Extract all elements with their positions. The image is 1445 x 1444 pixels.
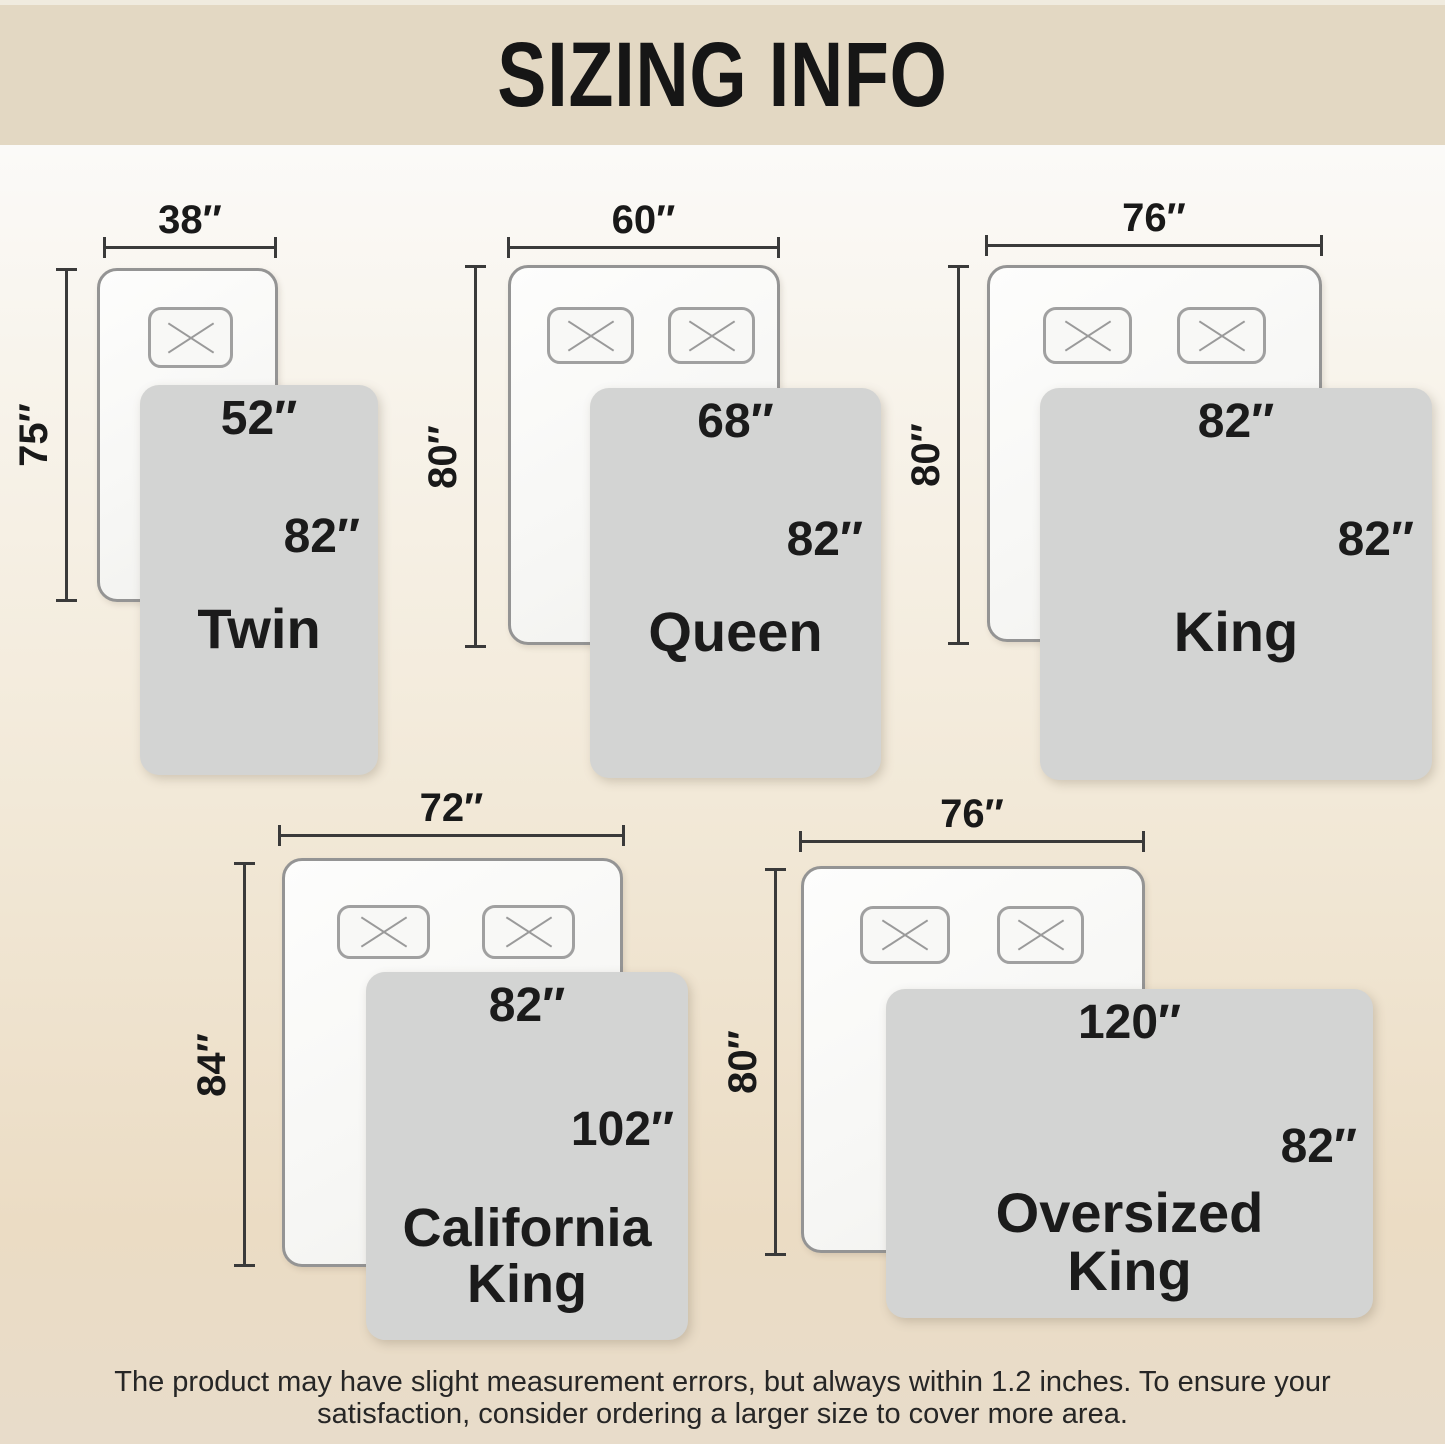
- blanket: 52″ 82″ Twin: [140, 385, 378, 775]
- footer-note-line2: satisfaction, consider ordering a larger…: [0, 1398, 1445, 1430]
- pillow: [148, 307, 233, 368]
- pillow-x-icon: [340, 908, 427, 956]
- bed-length-line: [243, 862, 246, 1267]
- pillow-x-icon: [550, 310, 631, 361]
- bed-width-label: 60″: [507, 198, 780, 242]
- bed-length-dimension: 75″: [65, 268, 68, 602]
- bed-length-line: [474, 265, 477, 648]
- bed-width-line: [799, 840, 1145, 843]
- blanket: 120″ 82″ Oversized King: [886, 989, 1373, 1318]
- bed-width-dimension: 60″: [507, 198, 780, 249]
- blanket: 82″ 82″ King: [1040, 388, 1432, 780]
- blanket-name: Twin: [140, 600, 378, 658]
- footer-note: The product may have slight measurement …: [0, 1366, 1445, 1430]
- footer-note-line1: The product may have slight measurement …: [0, 1366, 1445, 1398]
- blanket-length-label: 102″: [571, 1102, 674, 1157]
- sizing-info-page: SIZING INFO 38″ 75″ 52″ 82″ Twin 60″ 80″: [0, 0, 1445, 1444]
- pillow-x-icon: [151, 310, 230, 365]
- blanket-width-label: 82″: [366, 978, 688, 1033]
- pillow-x-icon: [863, 909, 947, 961]
- bed-length-label: 84″: [190, 1033, 234, 1097]
- blanket-width-label: 82″: [1040, 394, 1432, 449]
- bed-width-label: 72″: [278, 786, 625, 830]
- pillow: [547, 307, 634, 364]
- blanket-name: King: [1040, 603, 1432, 661]
- pillow: [997, 906, 1084, 964]
- pillow-x-icon: [671, 310, 752, 361]
- bed-length-label: 80″: [421, 425, 465, 489]
- blanket: 82″ 102″ California King: [366, 972, 688, 1340]
- blanket-width-label: 52″: [140, 391, 378, 446]
- blanket-name: Queen: [590, 603, 881, 661]
- bed-length-line: [957, 265, 960, 645]
- bed-length-label: 80″: [904, 423, 948, 487]
- pillow-x-icon: [1180, 310, 1263, 361]
- bed-length-line: [774, 868, 777, 1256]
- blanket-width-label: 120″: [886, 995, 1373, 1050]
- bed-length-dimension: 80″: [957, 265, 960, 645]
- blanket-name: Oversized King: [886, 1184, 1373, 1300]
- bed-length-label: 80″: [721, 1030, 765, 1094]
- pillow-x-icon: [1000, 909, 1081, 961]
- bed-width-line: [985, 244, 1323, 247]
- pillow: [1177, 307, 1266, 364]
- blanket-length-label: 82″: [787, 512, 863, 567]
- pillow: [337, 905, 430, 959]
- pillow: [668, 307, 755, 364]
- bed-width-label: 38″: [103, 198, 277, 242]
- bed-width-dimension: 72″: [278, 786, 625, 837]
- blanket-name: California King: [366, 1200, 688, 1312]
- bed-width-line: [278, 834, 625, 837]
- bed-length-dimension: 84″: [243, 862, 246, 1267]
- bed-width-dimension: 76″: [799, 792, 1145, 843]
- blanket: 68″ 82″ Queen: [590, 388, 881, 778]
- bed-length-dimension: 80″: [474, 265, 477, 648]
- header: SIZING INFO: [0, 5, 1445, 145]
- blanket-length-label: 82″: [284, 509, 360, 564]
- bed-width-dimension: 76″: [985, 196, 1323, 247]
- pillow: [482, 905, 575, 959]
- blanket-length-label: 82″: [1281, 1119, 1357, 1174]
- page-title: SIZING INFO: [497, 23, 947, 128]
- blanket-length-label: 82″: [1338, 512, 1414, 567]
- pillow-x-icon: [1046, 310, 1129, 361]
- bed-width-label: 76″: [985, 196, 1323, 240]
- bed-width-label: 76″: [799, 792, 1145, 836]
- blanket-width-label: 68″: [590, 394, 881, 449]
- bed-width-dimension: 38″: [103, 198, 277, 249]
- pillow-x-icon: [485, 908, 572, 956]
- bed-width-line: [507, 246, 780, 249]
- bed-length-line: [65, 268, 68, 602]
- pillow: [1043, 307, 1132, 364]
- bed-length-dimension: 80″: [774, 868, 777, 1256]
- pillow: [860, 906, 950, 964]
- bed-length-label: 75″: [12, 403, 56, 467]
- bed-width-line: [103, 246, 277, 249]
